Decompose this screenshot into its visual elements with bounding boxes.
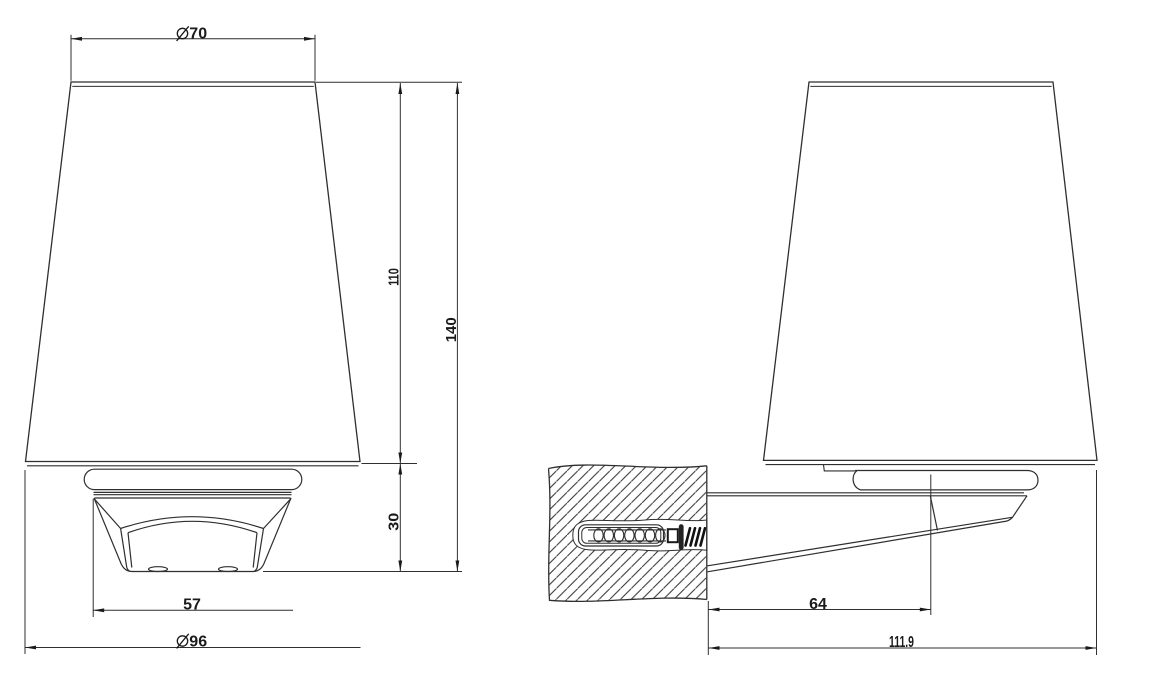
svg-text:96: 96: [189, 633, 207, 650]
svg-text:64: 64: [809, 596, 827, 613]
svg-text:57: 57: [183, 597, 201, 614]
svg-text:111.9: 111.9: [889, 634, 914, 651]
svg-text:30: 30: [385, 513, 402, 531]
svg-text:140: 140: [443, 317, 460, 342]
svg-text:70: 70: [189, 25, 207, 42]
svg-text:110: 110: [385, 268, 402, 286]
